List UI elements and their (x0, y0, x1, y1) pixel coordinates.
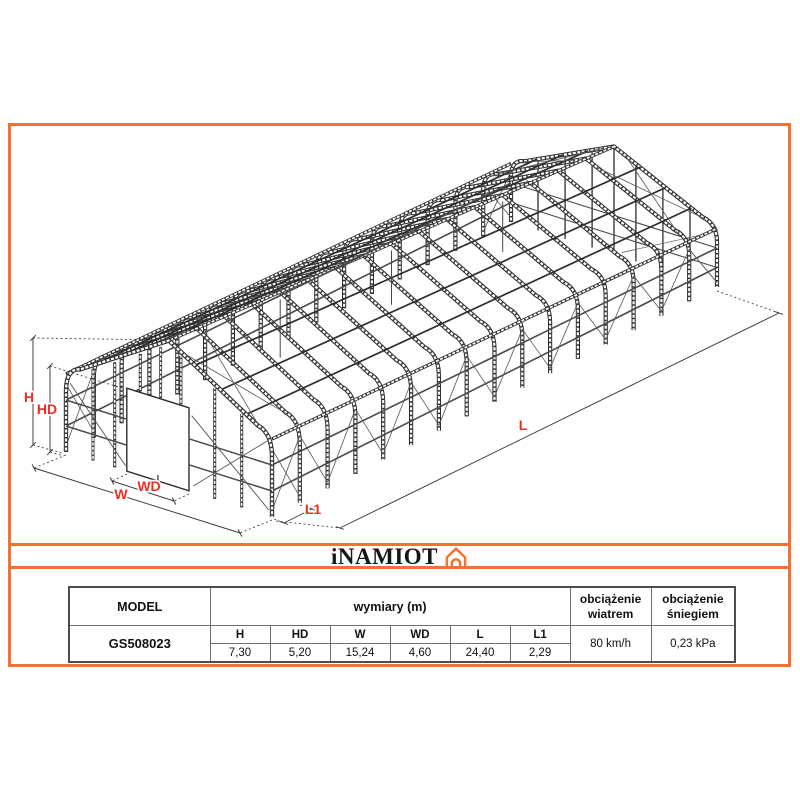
dims-header-cell: wymiary (m) (210, 587, 570, 626)
dim-label-h: H (24, 389, 34, 405)
dim-l1-value-cell: 2,29 (510, 644, 570, 663)
dim-l1-label-cell: L1 (510, 626, 570, 644)
dim-hd-value-cell: 5,20 (270, 644, 330, 663)
dim-h-value-cell: 7,30 (210, 644, 270, 663)
dim-w-label-cell: W (330, 626, 390, 644)
spec-table-wrap: MODEL wymiary (m) obciążenie wiatrem obc… (68, 586, 736, 663)
dim-label-w: W (114, 486, 128, 502)
wind-header-cell: obciążenie wiatrem (570, 587, 651, 626)
logo-band: iNAMIOT (11, 543, 788, 569)
snow-value-cell: 0,23 kPa (651, 626, 735, 663)
dim-h-label-cell: H (210, 626, 270, 644)
dim-l-label-cell: L (450, 626, 510, 644)
dimension-labels: H HD W WD L1 L (24, 389, 528, 517)
dim-wd-value-cell: 4,60 (390, 644, 450, 663)
spec-table: MODEL wymiary (m) obciążenie wiatrem obc… (68, 586, 736, 663)
dim-l-value-cell: 24,40 (450, 644, 510, 663)
model-value-cell: GS508023 (69, 626, 210, 663)
drawing-frame: H HD W WD L1 L iNAMIOT MODEL wymiary (m)… (8, 123, 791, 667)
dim-label-l1: L1 (305, 501, 322, 517)
dim-label-l: L (519, 417, 528, 433)
dim-w-value-cell: 15,24 (330, 644, 390, 663)
tent-icon (444, 546, 468, 567)
structure-lines (66, 147, 717, 518)
spec-sheet-page: { "drawing": { "labels": { "h": "H", "hd… (0, 0, 800, 800)
dim-label-hd: HD (37, 401, 57, 417)
dim-hd-label-cell: HD (270, 626, 330, 644)
dim-wd-label-cell: WD (390, 626, 450, 644)
logo-text: iNAMIOT (331, 547, 438, 566)
model-header-cell: MODEL (69, 587, 210, 626)
wind-value-cell: 80 km/h (570, 626, 651, 663)
structure-drawing: H HD W WD L1 L (11, 126, 788, 543)
dim-label-wd: WD (137, 478, 160, 494)
snow-header-cell: obciążenie śniegiem (651, 587, 735, 626)
